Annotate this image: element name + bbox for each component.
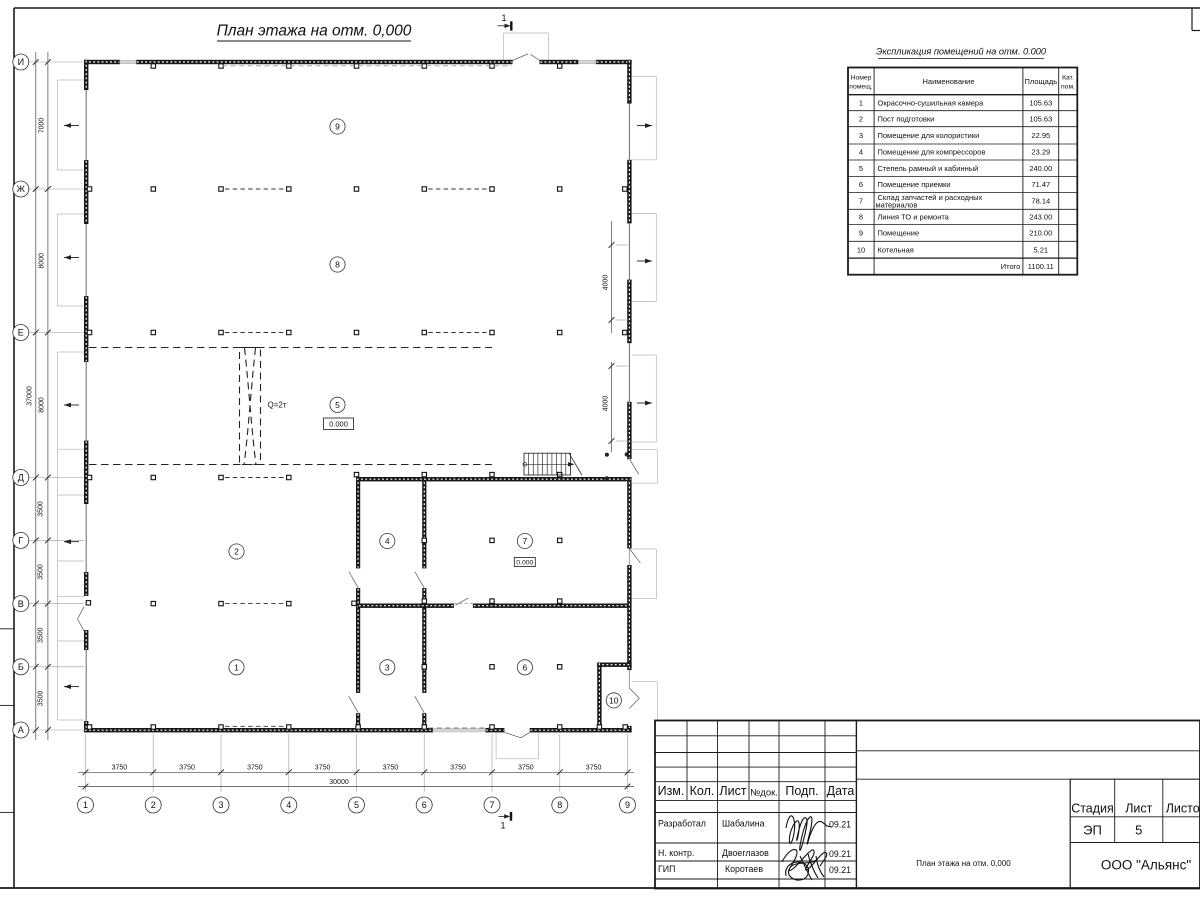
svg-text:Помещение для колористики: Помещение для колористики xyxy=(878,131,980,140)
svg-text:4: 4 xyxy=(286,800,291,810)
svg-text:Стадия: Стадия xyxy=(1071,802,1114,816)
svg-text:пом.: пом. xyxy=(1061,83,1075,90)
svg-text:Помещение: Помещение xyxy=(878,229,920,238)
svg-text:09.21: 09.21 xyxy=(829,849,851,859)
svg-text:Дата: Дата xyxy=(827,784,855,798)
svg-text:9: 9 xyxy=(335,122,340,132)
svg-text:6: 6 xyxy=(523,662,528,672)
svg-text:Площадь: Площадь xyxy=(1024,77,1057,86)
svg-text:Г: Г xyxy=(18,536,23,546)
svg-text:3750: 3750 xyxy=(315,765,331,772)
svg-text:8: 8 xyxy=(335,260,340,270)
svg-text:9: 9 xyxy=(859,229,863,238)
svg-text:Шабалина: Шабалина xyxy=(722,819,765,829)
svg-text:Экспликация помещений на отм.: Экспликация помещений на отм. 0.000 xyxy=(876,47,1047,57)
svg-text:В: В xyxy=(18,599,24,609)
svg-text:План этажа на отм. 0,000: План этажа на отм. 0,000 xyxy=(916,859,1011,868)
svg-text:Е: Е xyxy=(18,328,24,338)
svg-text:10: 10 xyxy=(609,696,619,706)
svg-text:№док.: №док. xyxy=(750,788,778,799)
svg-text:Лист: Лист xyxy=(719,784,746,798)
svg-text:5: 5 xyxy=(335,400,340,410)
svg-text:И: И xyxy=(18,57,24,67)
svg-text:5.21: 5.21 xyxy=(1033,245,1048,254)
svg-text:7: 7 xyxy=(489,800,494,810)
svg-text:3750: 3750 xyxy=(518,765,534,772)
svg-text:1: 1 xyxy=(859,98,863,107)
svg-text:План этажа на отм. 0,000: План этажа на отм. 0,000 xyxy=(217,23,412,40)
svg-text:1100.11: 1100.11 xyxy=(1028,262,1054,271)
svg-text:7000: 7000 xyxy=(39,118,46,134)
svg-text:9: 9 xyxy=(625,800,630,810)
svg-text:8: 8 xyxy=(557,800,562,810)
svg-text:Степель рамный и кабинный: Степель рамный и кабинный xyxy=(878,164,979,173)
svg-text:6: 6 xyxy=(422,800,427,810)
svg-text:Q=2т: Q=2т xyxy=(268,401,287,410)
svg-text:Листов: Листов xyxy=(1166,802,1200,816)
svg-text:помещ.: помещ. xyxy=(849,83,873,90)
svg-text:Разработал: Разработал xyxy=(658,819,706,829)
svg-text:Окрасочно-сушильная камера: Окрасочно-сушильная камера xyxy=(878,98,985,107)
svg-text:Помещение приемки: Помещение приемки xyxy=(878,180,951,189)
svg-text:3: 3 xyxy=(218,800,223,810)
svg-text:Пост подготовки: Пост подготовки xyxy=(878,114,935,123)
svg-text:1: 1 xyxy=(83,800,88,810)
svg-text:4: 4 xyxy=(385,536,390,546)
svg-text:3: 3 xyxy=(859,131,863,140)
svg-text:3500: 3500 xyxy=(38,564,45,580)
svg-text:105.63: 105.63 xyxy=(1029,98,1052,107)
svg-text:37000: 37000 xyxy=(27,386,34,406)
svg-text:7: 7 xyxy=(523,536,528,546)
svg-text:Кат.: Кат. xyxy=(1062,75,1074,82)
svg-text:1: 1 xyxy=(500,821,505,831)
svg-text:3750: 3750 xyxy=(450,765,466,772)
svg-text:Двоеглазов: Двоеглазов xyxy=(722,848,769,858)
svg-text:5: 5 xyxy=(859,164,863,173)
svg-text:ЭП: ЭП xyxy=(1083,823,1102,838)
svg-text:22.95: 22.95 xyxy=(1031,131,1050,140)
svg-text:10: 10 xyxy=(857,245,865,254)
svg-text:09.21: 09.21 xyxy=(829,865,851,875)
svg-text:78.14: 78.14 xyxy=(1031,197,1050,206)
svg-text:3500: 3500 xyxy=(38,627,45,643)
svg-text:Изм.: Изм. xyxy=(658,784,685,798)
svg-text:30000: 30000 xyxy=(329,779,349,786)
svg-text:Линия ТО и ремонта: Линия ТО и ремонта xyxy=(878,213,950,222)
svg-text:ООО "Альянс": ООО "Альянс" xyxy=(1101,858,1191,873)
svg-text:3500: 3500 xyxy=(38,691,45,707)
svg-text:210.00: 210.00 xyxy=(1029,229,1052,238)
svg-text:3750: 3750 xyxy=(112,765,128,772)
svg-text:2: 2 xyxy=(234,547,239,557)
svg-text:Номер: Номер xyxy=(851,75,872,82)
svg-text:7: 7 xyxy=(859,197,863,206)
svg-text:71.47: 71.47 xyxy=(1031,180,1050,189)
svg-text:3500: 3500 xyxy=(38,501,45,517)
svg-text:5: 5 xyxy=(354,800,359,810)
svg-text:1: 1 xyxy=(501,13,506,23)
svg-text:4000: 4000 xyxy=(602,396,609,412)
svg-text:4000: 4000 xyxy=(602,275,609,291)
svg-text:ГИП: ГИП xyxy=(658,864,675,874)
svg-text:4: 4 xyxy=(859,148,863,157)
svg-text:23.29: 23.29 xyxy=(1031,148,1050,157)
svg-text:3750: 3750 xyxy=(247,765,263,772)
svg-text:Итого: Итого xyxy=(1001,262,1021,271)
svg-text:Б: Б xyxy=(18,662,24,672)
svg-text:0.000: 0.000 xyxy=(516,560,533,567)
svg-text:А: А xyxy=(18,725,24,735)
svg-text:1: 1 xyxy=(234,662,239,672)
svg-text:3750: 3750 xyxy=(179,765,195,772)
svg-text:243.00: 243.00 xyxy=(1029,213,1052,222)
svg-text:3750: 3750 xyxy=(586,765,602,772)
svg-text:Наименование: Наименование xyxy=(923,77,975,86)
svg-text:6: 6 xyxy=(859,180,863,189)
svg-text:2: 2 xyxy=(151,800,156,810)
svg-text:Д: Д xyxy=(18,473,24,483)
svg-text:0.000: 0.000 xyxy=(329,420,348,429)
svg-text:8: 8 xyxy=(859,213,863,222)
svg-text:8000: 8000 xyxy=(39,253,46,269)
svg-text:3750: 3750 xyxy=(383,765,399,772)
svg-text:Коротаев: Коротаев xyxy=(725,864,763,874)
svg-text:2: 2 xyxy=(859,114,863,123)
svg-text:240.00: 240.00 xyxy=(1029,164,1052,173)
svg-text:материалов: материалов xyxy=(876,200,918,209)
svg-text:3: 3 xyxy=(385,662,390,672)
svg-text:Лист: Лист xyxy=(1125,802,1152,816)
svg-text:Помещение для компрессоров: Помещение для компрессоров xyxy=(878,148,986,157)
svg-text:8000: 8000 xyxy=(39,397,46,413)
svg-text:09.21: 09.21 xyxy=(829,820,851,830)
svg-text:5: 5 xyxy=(1135,823,1142,838)
svg-text:105.63: 105.63 xyxy=(1029,114,1052,123)
svg-text:Кол.: Кол. xyxy=(690,784,715,798)
svg-text:Котельная: Котельная xyxy=(878,245,914,254)
svg-text:Ж: Ж xyxy=(17,184,26,194)
svg-text:Подп.: Подп. xyxy=(785,784,818,798)
svg-text:Н. контр.: Н. контр. xyxy=(658,848,694,858)
